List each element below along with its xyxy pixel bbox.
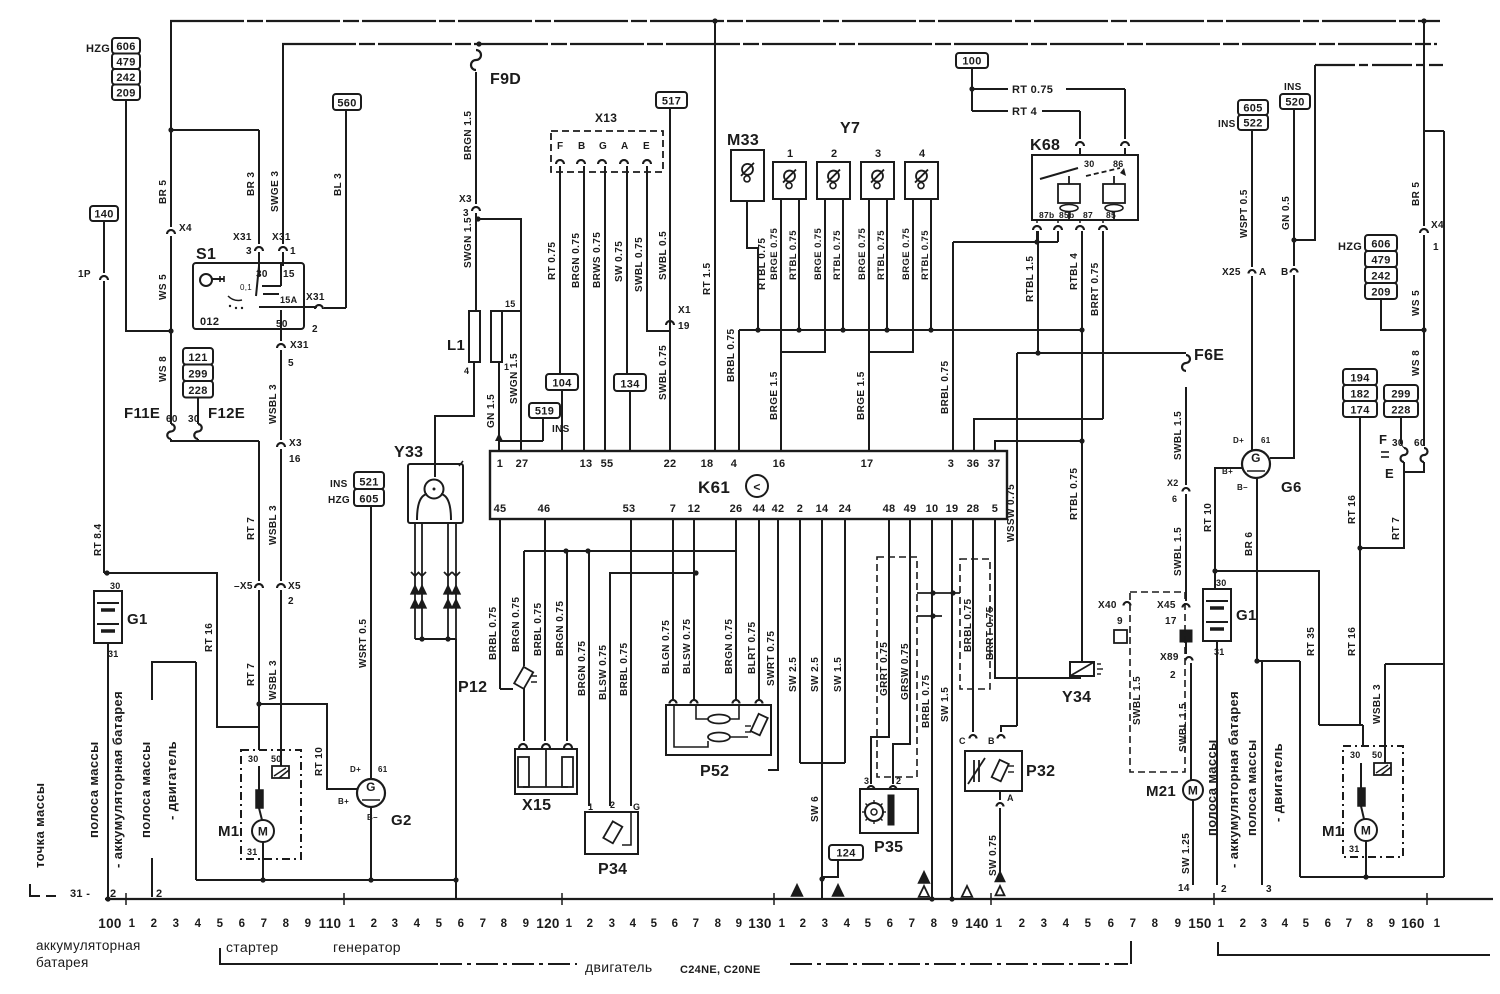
svg-text:BR 3: BR 3 — [246, 172, 257, 196]
svg-text:1: 1 — [349, 918, 356, 930]
svg-text:P52: P52 — [700, 763, 729, 780]
svg-text:87: 87 — [1083, 210, 1093, 220]
svg-text:1: 1 — [1218, 918, 1225, 930]
svg-text:2: 2 — [610, 800, 615, 810]
svg-text:BR 5: BR 5 — [1411, 182, 1422, 206]
svg-text:3: 3 — [1266, 884, 1272, 895]
svg-text:SWBL 1.5: SWBL 1.5 — [1173, 527, 1184, 576]
svg-text:RT 0.75: RT 0.75 — [547, 242, 558, 280]
svg-text:7: 7 — [1346, 918, 1353, 930]
svg-text:G6: G6 — [1281, 479, 1302, 496]
svg-text:7: 7 — [1130, 918, 1137, 930]
svg-text:242: 242 — [1371, 271, 1390, 283]
svg-text:1: 1 — [1433, 242, 1439, 253]
svg-text:BRGE 0.75: BRGE 0.75 — [857, 228, 868, 280]
svg-text:100: 100 — [98, 916, 121, 931]
svg-text:28: 28 — [967, 503, 980, 515]
svg-text:X4: X4 — [1431, 220, 1444, 231]
svg-text:2: 2 — [896, 776, 901, 786]
svg-text:BRGE 1.5: BRGE 1.5 — [856, 371, 867, 420]
svg-text:30: 30 — [1350, 750, 1361, 760]
svg-text:WSBL 3: WSBL 3 — [268, 505, 279, 545]
svg-text:5: 5 — [1085, 918, 1092, 930]
svg-text:3: 3 — [1041, 918, 1048, 930]
svg-text:228: 228 — [188, 385, 207, 397]
svg-text:D+: D+ — [1233, 436, 1244, 445]
svg-text:37: 37 — [988, 458, 1001, 470]
svg-text:2: 2 — [587, 918, 594, 930]
svg-text:1: 1 — [1434, 918, 1441, 930]
svg-text:24: 24 — [839, 503, 852, 515]
svg-text:WSBL 3: WSBL 3 — [1372, 684, 1383, 724]
svg-text:5: 5 — [1303, 918, 1310, 930]
svg-text:1: 1 — [497, 458, 503, 470]
svg-text:104: 104 — [552, 378, 572, 390]
svg-text:49: 49 — [904, 503, 917, 515]
svg-text:14: 14 — [1178, 883, 1190, 894]
svg-text:2: 2 — [371, 918, 378, 930]
svg-text:A: A — [621, 141, 629, 152]
svg-text:5: 5 — [865, 918, 872, 930]
svg-text:WSRT 0.5: WSRT 0.5 — [358, 619, 369, 668]
svg-text:HZG: HZG — [1338, 241, 1362, 253]
svg-text:0,1: 0,1 — [240, 283, 252, 292]
svg-text:2: 2 — [797, 503, 803, 515]
svg-text:605: 605 — [359, 494, 378, 506]
svg-text:WSSW 0.75: WSSW 0.75 — [1006, 484, 1017, 542]
svg-text:3: 3 — [173, 918, 180, 930]
svg-text:P34: P34 — [598, 861, 627, 878]
svg-text:5: 5 — [288, 358, 294, 369]
svg-text:X31: X31 — [290, 340, 309, 351]
svg-text:F: F — [557, 141, 563, 152]
svg-text:- двигатель: - двигатель — [1270, 743, 1285, 822]
svg-text:RTBL 0.75: RTBL 0.75 — [832, 230, 843, 280]
svg-text:F12E: F12E — [208, 405, 245, 422]
svg-text:C24NE, C20NE: C24NE, C20NE — [680, 964, 761, 976]
svg-text:S1: S1 — [196, 246, 216, 263]
svg-text:BR 5: BR 5 — [158, 180, 169, 204]
svg-text:BRBL 0.75: BRBL 0.75 — [726, 329, 737, 382]
svg-text:2: 2 — [831, 148, 837, 160]
svg-text:G2: G2 — [391, 812, 412, 829]
svg-text:A: A — [1007, 793, 1014, 803]
svg-text:61: 61 — [1261, 436, 1271, 445]
svg-text:BRGE 0.75: BRGE 0.75 — [769, 228, 780, 280]
svg-text:батарея: батарея — [36, 955, 89, 970]
svg-text:INS: INS — [1218, 119, 1236, 130]
svg-text:BLSW 0.75: BLSW 0.75 — [598, 645, 609, 700]
svg-text:130: 130 — [748, 916, 771, 931]
svg-text:120: 120 — [536, 916, 559, 931]
svg-text:X1: X1 — [678, 305, 691, 316]
svg-text:P32: P32 — [1026, 763, 1055, 780]
svg-text:BLRT 0.75: BLRT 0.75 — [747, 621, 758, 674]
svg-text:1: 1 — [779, 918, 786, 930]
svg-text:6: 6 — [887, 918, 894, 930]
svg-text:31: 31 — [1214, 647, 1225, 657]
svg-text:3: 3 — [1261, 918, 1268, 930]
svg-text:30: 30 — [1392, 438, 1404, 449]
svg-text:RT 1.5: RT 1.5 — [702, 263, 713, 295]
svg-text:1: 1 — [290, 246, 296, 257]
svg-text:2: 2 — [1170, 670, 1176, 681]
svg-text:7: 7 — [693, 918, 700, 930]
svg-text:RTBL 0.75: RTBL 0.75 — [757, 238, 768, 290]
svg-text:BRBL 0.75: BRBL 0.75 — [963, 599, 974, 652]
svg-text:GN 0.5: GN 0.5 — [1281, 196, 1292, 230]
svg-text:BRGN 0.75: BRGN 0.75 — [555, 601, 566, 656]
svg-text:RTBL 4: RTBL 4 — [1069, 253, 1080, 290]
svg-text:22: 22 — [664, 458, 677, 470]
svg-text:G1: G1 — [127, 611, 148, 628]
svg-text:HZG: HZG — [328, 495, 350, 506]
svg-text:SW 2.5: SW 2.5 — [788, 657, 799, 692]
svg-text:182: 182 — [1350, 389, 1369, 401]
svg-text:B+: B+ — [338, 797, 349, 806]
svg-text:8: 8 — [715, 918, 722, 930]
svg-text:30: 30 — [1084, 159, 1095, 169]
svg-text:M: M — [258, 825, 268, 839]
svg-text:SW 0.75: SW 0.75 — [988, 835, 999, 876]
svg-text:WSBL 3: WSBL 3 — [268, 384, 279, 424]
svg-text:14: 14 — [816, 503, 829, 515]
svg-text:X45: X45 — [1157, 600, 1176, 611]
svg-text:26: 26 — [730, 503, 743, 515]
svg-text:9: 9 — [523, 918, 530, 930]
svg-text:15A: 15A — [280, 295, 298, 305]
svg-text:5: 5 — [651, 918, 658, 930]
svg-text:479: 479 — [116, 57, 135, 69]
svg-text:521: 521 — [359, 477, 378, 489]
svg-text:30: 30 — [248, 754, 259, 764]
svg-text:9: 9 — [305, 918, 312, 930]
svg-text:X40: X40 — [1098, 600, 1117, 611]
svg-text:D+: D+ — [350, 765, 361, 774]
svg-text:520: 520 — [1285, 97, 1304, 109]
svg-text:M: M — [1188, 784, 1198, 798]
svg-text:110: 110 — [319, 916, 342, 931]
svg-text:2: 2 — [800, 918, 807, 930]
svg-text:19: 19 — [678, 321, 690, 332]
svg-text:SW 2.5: SW 2.5 — [810, 657, 821, 692]
svg-text:X31: X31 — [306, 292, 325, 303]
svg-text:G: G — [366, 780, 376, 794]
svg-text:209: 209 — [1371, 287, 1390, 299]
svg-text:124: 124 — [836, 848, 856, 860]
svg-text:X31: X31 — [233, 232, 252, 243]
svg-text:точка массы: точка массы — [32, 783, 47, 868]
svg-text:121: 121 — [188, 352, 207, 364]
svg-text:SWGN 1.5: SWGN 1.5 — [463, 217, 474, 268]
svg-text:606: 606 — [1371, 239, 1390, 251]
svg-text:X89: X89 — [1160, 652, 1179, 663]
svg-text:36: 36 — [967, 458, 980, 470]
svg-text:517: 517 — [662, 96, 681, 108]
svg-text:30: 30 — [110, 581, 121, 591]
svg-text:30: 30 — [1216, 578, 1227, 588]
svg-text:M1: M1 — [1322, 823, 1343, 840]
svg-text:BRGE 0.75: BRGE 0.75 — [901, 228, 912, 280]
svg-text:SW 1.5: SW 1.5 — [833, 657, 844, 692]
svg-text:522: 522 — [1243, 118, 1262, 130]
svg-text:SWGN 1.5: SWGN 1.5 — [509, 353, 520, 404]
svg-text:RTBL 0.75: RTBL 0.75 — [1069, 468, 1080, 520]
svg-text:X4: X4 — [179, 223, 192, 234]
svg-text:X25: X25 — [1222, 267, 1241, 278]
svg-text:E: E — [1385, 466, 1394, 481]
svg-text:6: 6 — [458, 918, 465, 930]
svg-text:61: 61 — [378, 765, 388, 774]
svg-text:K61: K61 — [698, 478, 730, 497]
svg-text:1: 1 — [787, 148, 793, 160]
svg-text:WS 8: WS 8 — [1411, 350, 1422, 376]
svg-text:5: 5 — [992, 503, 998, 515]
svg-text:45: 45 — [494, 503, 507, 515]
svg-text:BL 3: BL 3 — [333, 173, 344, 196]
svg-text:K68: K68 — [1030, 137, 1060, 154]
svg-text:HZG: HZG — [86, 43, 110, 55]
svg-text:299: 299 — [1391, 389, 1410, 401]
svg-text:2: 2 — [312, 324, 318, 335]
svg-text:53: 53 — [623, 503, 636, 515]
svg-text:RT 16: RT 16 — [204, 623, 215, 652]
svg-text:RT 16: RT 16 — [1347, 627, 1358, 656]
svg-text:1P: 1P — [78, 269, 91, 280]
svg-text:606: 606 — [116, 41, 135, 53]
svg-text:RTBL 0.75: RTBL 0.75 — [788, 230, 799, 280]
svg-text:48: 48 — [883, 503, 896, 515]
svg-text:RT 7: RT 7 — [1391, 517, 1402, 540]
svg-text:7: 7 — [480, 918, 487, 930]
svg-text:15: 15 — [505, 299, 516, 309]
svg-text:44: 44 — [753, 503, 766, 515]
svg-text:3: 3 — [864, 776, 869, 786]
svg-text:SWBL 0.75: SWBL 0.75 — [658, 345, 669, 400]
svg-text:RT 10: RT 10 — [1203, 503, 1214, 532]
svg-text:17: 17 — [861, 458, 874, 470]
svg-text:F9D: F9D — [490, 71, 521, 88]
svg-text:RT 0.75: RT 0.75 — [1012, 84, 1053, 96]
svg-text:BRGN 0.75: BRGN 0.75 — [571, 233, 582, 288]
svg-text:BRGN 1.5: BRGN 1.5 — [463, 111, 474, 160]
svg-text:31: 31 — [1349, 844, 1360, 854]
svg-text:генератор: генератор — [333, 939, 401, 955]
svg-text:BRBL 0.75: BRBL 0.75 — [921, 675, 932, 728]
svg-text:7: 7 — [909, 918, 916, 930]
svg-text:4: 4 — [844, 918, 851, 930]
svg-text:BR 6: BR 6 — [1244, 532, 1255, 556]
svg-text:P12: P12 — [458, 679, 487, 696]
svg-text:SWBL 0.5: SWBL 0.5 — [658, 231, 669, 280]
svg-text:479: 479 — [1371, 255, 1390, 267]
svg-text:Y33: Y33 — [394, 444, 423, 461]
svg-text:27: 27 — [516, 458, 529, 470]
svg-text:10: 10 — [926, 503, 939, 515]
svg-text:BRBL 0.75: BRBL 0.75 — [940, 361, 951, 414]
svg-text:SWBL 1.5: SWBL 1.5 — [1178, 703, 1189, 752]
svg-text:BRRT 0.75: BRRT 0.75 — [985, 606, 996, 660]
svg-text:аккумуляторная: аккумуляторная — [36, 938, 141, 953]
svg-text:1: 1 — [996, 918, 1003, 930]
svg-text:3: 3 — [948, 458, 954, 470]
svg-text:RT 35: RT 35 — [1306, 627, 1317, 656]
svg-text:Y34: Y34 — [1062, 689, 1091, 706]
svg-text:полоса массы: полоса массы — [1244, 739, 1259, 836]
svg-text:6: 6 — [239, 918, 246, 930]
svg-text:9: 9 — [1389, 918, 1396, 930]
svg-text:Y7: Y7 — [840, 120, 860, 137]
svg-text:50: 50 — [1372, 750, 1383, 760]
svg-text:140: 140 — [965, 916, 988, 931]
svg-text:SWGE 3: SWGE 3 — [270, 171, 281, 212]
svg-text:16: 16 — [289, 454, 301, 465]
svg-text:605: 605 — [1243, 103, 1262, 115]
svg-text:X3: X3 — [289, 438, 302, 449]
svg-text:100: 100 — [962, 56, 981, 68]
svg-text:B: B — [1281, 267, 1289, 278]
svg-text:3: 3 — [246, 246, 252, 257]
svg-text:B–: B– — [1237, 483, 1248, 492]
svg-text:F6E: F6E — [1194, 347, 1224, 364]
svg-text:X13: X13 — [595, 111, 617, 125]
svg-text:4: 4 — [630, 918, 637, 930]
svg-text:BRBL 0.75: BRBL 0.75 — [533, 603, 544, 656]
svg-text:8: 8 — [283, 918, 290, 930]
svg-text:BRGE 0.75: BRGE 0.75 — [813, 228, 824, 280]
svg-text:C: C — [959, 736, 966, 746]
svg-text:8: 8 — [931, 918, 938, 930]
svg-text:INS: INS — [1284, 82, 1302, 93]
svg-text:17: 17 — [1165, 616, 1177, 627]
svg-text:2: 2 — [1240, 918, 1247, 930]
svg-text:INS: INS — [330, 479, 348, 490]
svg-text:31: 31 — [247, 847, 258, 857]
svg-text:560: 560 — [337, 98, 356, 110]
svg-text:7: 7 — [261, 918, 268, 930]
svg-text:13: 13 — [580, 458, 593, 470]
svg-text:GRSW 0.75: GRSW 0.75 — [900, 643, 911, 700]
svg-text:16: 16 — [773, 458, 786, 470]
svg-text:5: 5 — [217, 918, 224, 930]
svg-text:RT 8.4: RT 8.4 — [93, 524, 104, 556]
svg-text:299: 299 — [188, 369, 207, 381]
svg-text:4: 4 — [464, 366, 469, 376]
svg-text:140: 140 — [94, 209, 113, 221]
svg-text:BRGN 0.75: BRGN 0.75 — [577, 641, 588, 696]
svg-text:INS: INS — [552, 424, 570, 435]
svg-text:8: 8 — [501, 918, 508, 930]
svg-text:RTBL 1.5: RTBL 1.5 — [1025, 256, 1036, 302]
svg-text:WS 5: WS 5 — [158, 274, 169, 300]
svg-text:полоса массы: полоса массы — [86, 741, 101, 838]
svg-text:G1: G1 — [1236, 607, 1257, 624]
svg-text:6: 6 — [672, 918, 679, 930]
svg-text:55: 55 — [601, 458, 614, 470]
svg-text:полоса массы: полоса массы — [1204, 739, 1219, 836]
svg-text:BRGN 0.75: BRGN 0.75 — [511, 597, 522, 652]
svg-text:2: 2 — [288, 596, 294, 607]
svg-text:BRGN 0.75: BRGN 0.75 — [724, 619, 735, 674]
svg-text:7: 7 — [670, 503, 676, 515]
svg-text:6: 6 — [1172, 494, 1177, 504]
svg-text:G: G — [1251, 451, 1261, 465]
svg-text:WSBL 3: WSBL 3 — [268, 660, 279, 700]
svg-text:M: M — [1361, 824, 1371, 838]
svg-text:3: 3 — [822, 918, 829, 930]
svg-text:BRRT 0.75: BRRT 0.75 — [1090, 262, 1101, 316]
svg-text:12: 12 — [688, 503, 701, 515]
svg-text:4: 4 — [1282, 918, 1289, 930]
svg-text:4: 4 — [731, 458, 738, 470]
svg-text:209: 209 — [116, 88, 135, 100]
svg-text:BLGN 0.75: BLGN 0.75 — [661, 620, 672, 674]
svg-text:3: 3 — [609, 918, 616, 930]
svg-text:194: 194 — [1350, 373, 1370, 385]
svg-text:1: 1 — [588, 802, 593, 812]
svg-text:31 -: 31 - — [70, 888, 90, 900]
svg-text:4: 4 — [414, 918, 421, 930]
svg-text:RT 4: RT 4 — [1012, 106, 1038, 118]
svg-text:228: 228 — [1391, 405, 1410, 417]
svg-text:G: G — [633, 802, 640, 812]
svg-text:полоса массы: полоса массы — [138, 741, 153, 838]
svg-text:4: 4 — [1063, 918, 1070, 930]
svg-text:174: 174 — [1350, 405, 1370, 417]
svg-text:WS 8: WS 8 — [158, 356, 169, 382]
svg-text:двигатель: двигатель — [585, 959, 652, 975]
svg-text:87b: 87b — [1039, 210, 1055, 220]
svg-text:- аккумуляторная батарея: - аккумуляторная батарея — [110, 691, 125, 868]
svg-text:4: 4 — [195, 918, 202, 930]
svg-text:1: 1 — [566, 918, 573, 930]
svg-text:9: 9 — [1175, 918, 1182, 930]
svg-text:BRGE 1.5: BRGE 1.5 — [769, 371, 780, 420]
svg-text:19: 19 — [946, 503, 959, 515]
svg-text:SWBL 0.75: SWBL 0.75 — [634, 237, 645, 292]
svg-text:8: 8 — [1152, 918, 1159, 930]
svg-text:31: 31 — [108, 649, 119, 659]
svg-text:WS 5: WS 5 — [1411, 290, 1422, 316]
svg-text:P35: P35 — [874, 839, 903, 856]
svg-text:4: 4 — [919, 148, 926, 160]
svg-text:SWBL 1.5: SWBL 1.5 — [1132, 676, 1143, 725]
svg-text:SWRT 0.75: SWRT 0.75 — [766, 631, 777, 686]
svg-text:SW 0.75: SW 0.75 — [614, 241, 625, 282]
svg-text:- аккумуляторная батарея: - аккумуляторная батарея — [1226, 691, 1241, 868]
svg-text:M21: M21 — [1146, 783, 1176, 800]
svg-text:L1: L1 — [447, 337, 465, 354]
svg-text:SWBL 1.5: SWBL 1.5 — [1173, 411, 1184, 460]
svg-text:9: 9 — [952, 918, 959, 930]
svg-text:2: 2 — [1019, 918, 1026, 930]
svg-text:RT 10: RT 10 — [314, 747, 325, 776]
svg-text:–X5: –X5 — [234, 581, 253, 592]
svg-text:GN 1.5: GN 1.5 — [486, 394, 497, 428]
svg-text:X5: X5 — [288, 581, 301, 592]
svg-text:BRBL 0.75: BRBL 0.75 — [488, 607, 499, 660]
svg-text:WSPT 0.5: WSPT 0.5 — [1239, 189, 1250, 238]
svg-text:BLSW 0.75: BLSW 0.75 — [682, 619, 693, 674]
svg-text:46: 46 — [538, 503, 551, 515]
svg-text:RT 7: RT 7 — [246, 517, 257, 540]
svg-text:6: 6 — [1108, 918, 1115, 930]
svg-text:3: 3 — [392, 918, 399, 930]
svg-text:519: 519 — [535, 406, 554, 418]
svg-text:134: 134 — [620, 379, 640, 391]
svg-text:RT 16: RT 16 — [1347, 495, 1358, 524]
svg-text:X15: X15 — [522, 797, 551, 814]
